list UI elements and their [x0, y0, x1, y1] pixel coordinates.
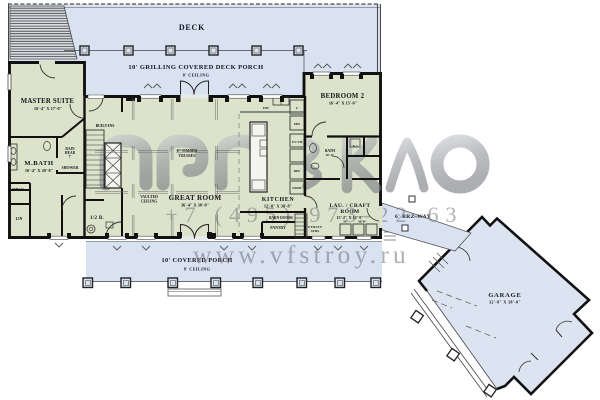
svg-text:M.BATH: M.BATH	[24, 160, 53, 167]
svg-text:MASTER SUITE: MASTER SUITE	[21, 98, 75, 105]
svg-text:32'-8" X 38'-0": 32'-8" X 38'-0"	[489, 300, 521, 305]
svg-text:UV/VB: UV/VB	[292, 140, 303, 144]
svg-text:+7 (495) 973-22-63: +7 (495) 973-22-63	[165, 202, 463, 227]
svg-text:10' GRILLING COVERED DECK PORC: 10' GRILLING COVERED DECK PORCH	[128, 64, 263, 71]
svg-text:7': 7'	[69, 155, 72, 159]
svg-text:BEDROOM 2: BEDROOM 2	[321, 93, 365, 100]
svg-text:LIN: LIN	[16, 217, 23, 221]
svg-text:36'-4" X 30'-8": 36'-4" X 30'-8"	[181, 203, 209, 208]
svg-text:www.vfstroy.ru: www.vfstroy.ru	[193, 240, 410, 269]
svg-text:SHLVS: SHLVS	[12, 188, 24, 192]
svg-text:DW: DW	[263, 106, 269, 110]
svg-text:K.C.: K.C.	[353, 144, 360, 148]
svg-text:12'-0" X 30'-8": 12'-0" X 30'-8"	[264, 204, 292, 209]
svg-text:16'-4" X 17'-0": 16'-4" X 17'-0"	[34, 106, 62, 111]
svg-text:STRS: STRS	[311, 229, 320, 233]
svg-text:SEW: SEW	[358, 220, 366, 224]
svg-text:1/2 B.: 1/2 B.	[90, 216, 104, 221]
svg-text:FRZR: FRZR	[292, 186, 302, 190]
svg-text:MW: MW	[294, 122, 301, 126]
svg-text:KITCHEN: KITCHEN	[262, 197, 295, 203]
svg-text:GARAGE: GARAGE	[488, 292, 521, 299]
svg-text:BUILT-INS: BUILT-INS	[96, 124, 115, 128]
svg-text:CEILING: CEILING	[141, 200, 158, 204]
svg-text:REF: REF	[294, 169, 301, 173]
svg-text:BARN DOORS: BARN DOORS	[269, 216, 293, 220]
svg-text:SHOWER: SHOWER	[61, 166, 78, 170]
svg-text:DECK: DECK	[179, 23, 205, 32]
svg-text:16'-4" X 15'-0": 16'-4" X 15'-0"	[329, 101, 357, 106]
svg-text:TRUSSES: TRUSSES	[179, 154, 196, 158]
svg-text:10'-0": 10'-0"	[325, 153, 334, 157]
svg-text:16'-4" X 20'-8": 16'-4" X 20'-8"	[25, 168, 53, 173]
svg-text:8' CEILING: 8' CEILING	[183, 73, 210, 78]
svg-text:GREAT ROOM: GREAT ROOM	[169, 194, 222, 202]
svg-text:PANTRY: PANTRY	[270, 226, 286, 230]
svg-text:VAULTED: VAULTED	[140, 195, 158, 199]
